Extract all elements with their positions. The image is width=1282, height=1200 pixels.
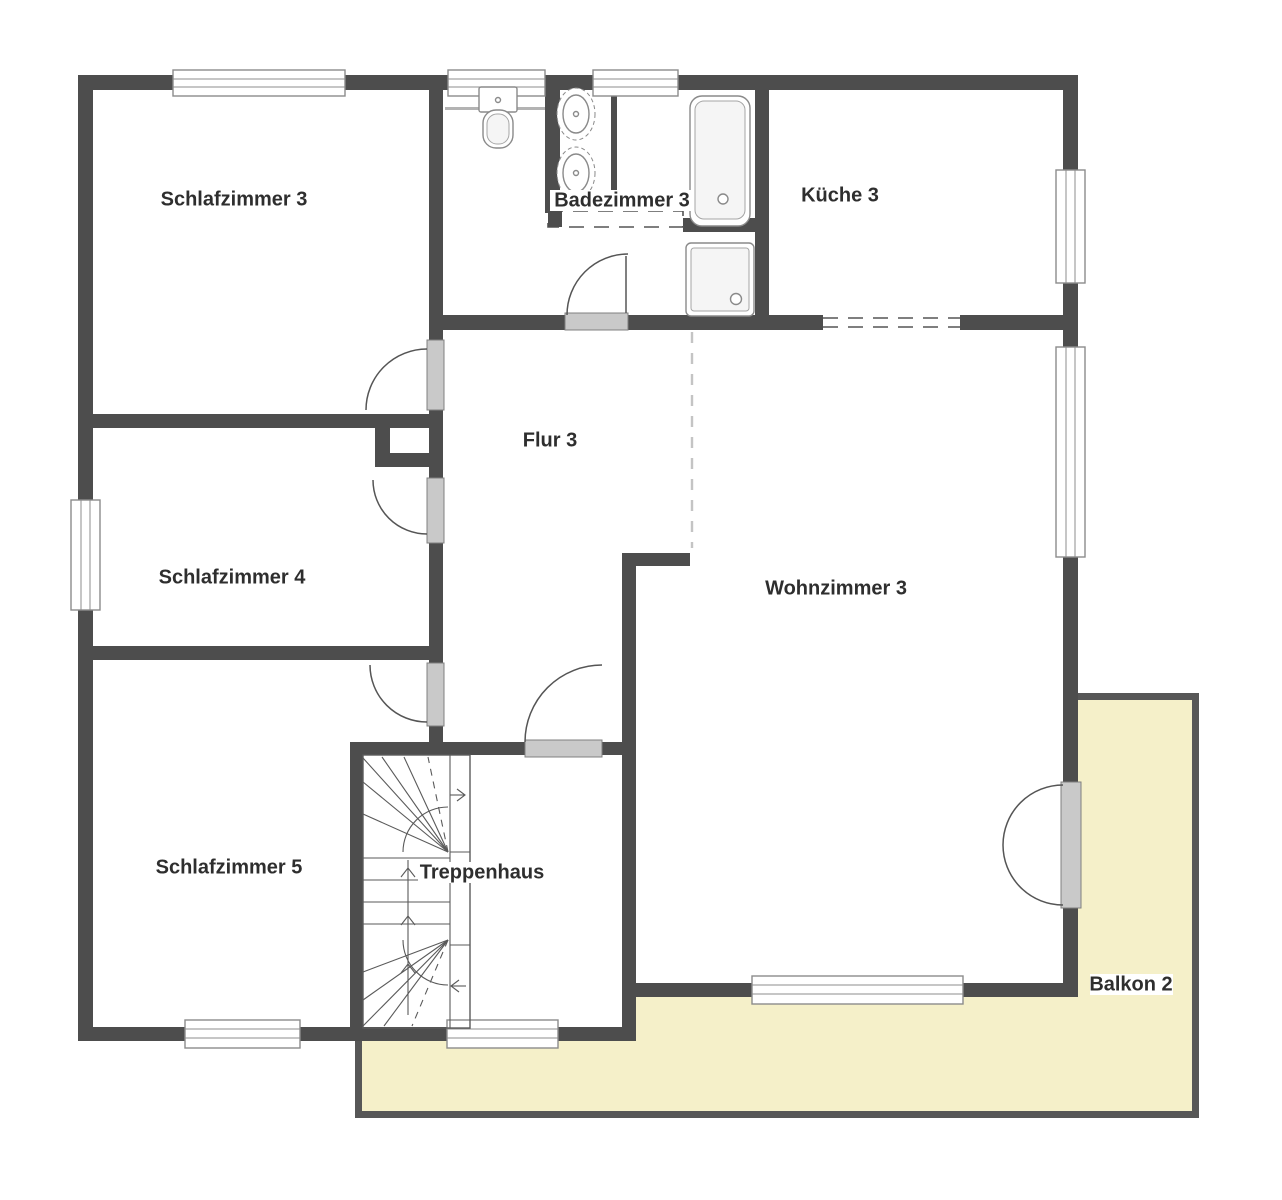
floor-plan-canvas: Schlafzimmer 3 Badezimmer 3 Küche 3 Flur… [0,0,1282,1200]
bathtub [690,96,750,226]
stairs-outline [363,755,470,1028]
toilet [479,87,517,148]
wall-stairs-top-b [602,742,636,755]
wall-stairs-left [350,742,363,1041]
wall-bedroom4-bedroom5 [93,646,443,660]
window-bedroom5 [185,1020,300,1048]
room-label-treppenhaus: Treppenhaus [420,861,544,883]
door-bedroom4 [373,478,444,543]
stairs-winder-top [363,757,448,852]
room-labels: Schlafzimmer 3 Badezimmer 3 Küche 3 Flur… [156,184,1173,995]
door-bedroom5 [370,663,444,726]
wall-bathroom-sink [611,90,617,190]
floor-plan: Schlafzimmer 3 Badezimmer 3 Küche 3 Flur… [0,0,1282,1200]
wall-hallway-top-b [628,315,823,330]
wall-hallway-west-c [429,543,443,663]
room-label-balkon2: Balkon 2 [1089,973,1172,995]
wall-hallway-west-a [429,90,443,340]
bathroom-half-wall-stub [548,211,562,227]
bathroom-half-wall [548,211,683,227]
balcony-wall-bottom [355,1111,1199,1118]
wall-hallway-west-d [429,726,443,742]
room-label-schlafzimmer4: Schlafzimmer 4 [159,566,307,588]
wall-kitchen-bottom [960,315,1063,330]
balcony-wall-top [1078,693,1199,700]
kitchen-passthrough-gap [823,315,960,330]
window-livingroom-east [1056,347,1085,557]
wall-stairs-top-a [350,742,525,755]
sink-upper [557,88,595,140]
wall-livingroom-west [622,553,636,1041]
wall-bathroom-kitchen [755,78,769,317]
shower [686,243,754,316]
balcony-wall-left [355,1041,362,1118]
window-bedroom4 [71,500,100,610]
window-staircase [447,1020,558,1048]
door-staircase [525,665,602,757]
window-bathroom [593,70,678,96]
stairs-winder-bottom [363,940,448,1026]
room-label-kueche3: Küche 3 [801,184,879,206]
wall-hallway-top-a [429,315,565,330]
wall-bedroom3-bedroom4 [93,414,443,428]
staircase [363,755,470,1028]
window-bedroom3 [173,70,345,96]
wall-livingroom-nose [622,553,690,566]
chimney-stub-bottom [375,453,443,467]
window-livingroom-south [752,976,963,1004]
room-label-schlafzimmer3: Schlafzimmer 3 [161,188,308,210]
doors [366,254,1081,908]
room-label-flur3: Flur 3 [523,429,577,451]
door-bathroom [565,254,628,330]
door-balcony-french [1003,782,1081,908]
room-label-schlafzimmer5: Schlafzimmer 5 [156,856,303,878]
door-bedroom3 [366,340,444,410]
balcony-wall-right [1192,693,1199,1118]
room-label-badezimmer3: Badezimmer 3 [554,189,690,211]
window-kitchen [1056,170,1085,283]
room-label-wohnzimmer3: Wohnzimmer 3 [765,577,907,599]
